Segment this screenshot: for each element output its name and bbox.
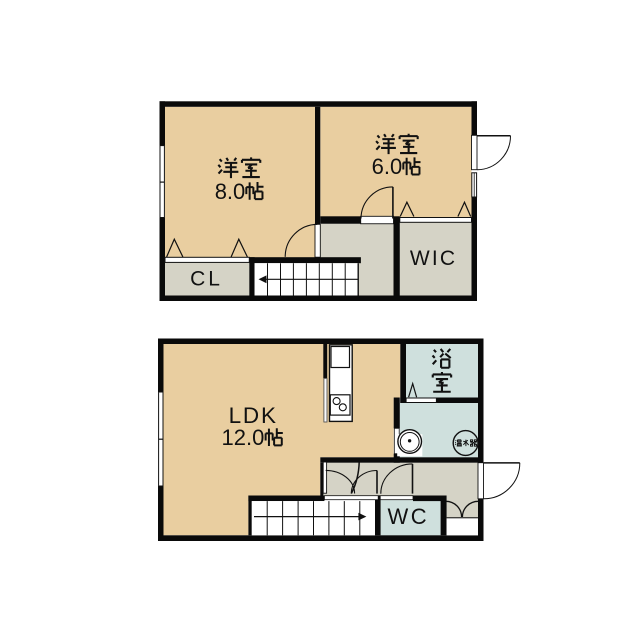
svg-text:12.0: 12.0 bbox=[222, 425, 265, 450]
svg-text:8.0: 8.0 bbox=[215, 179, 246, 204]
svg-text:WC: WC bbox=[387, 504, 429, 529]
svg-text:WIC: WIC bbox=[410, 247, 457, 270]
svg-text:CL: CL bbox=[190, 268, 223, 291]
svg-text:LDK: LDK bbox=[229, 403, 278, 428]
svg-text:6.0: 6.0 bbox=[372, 154, 403, 179]
